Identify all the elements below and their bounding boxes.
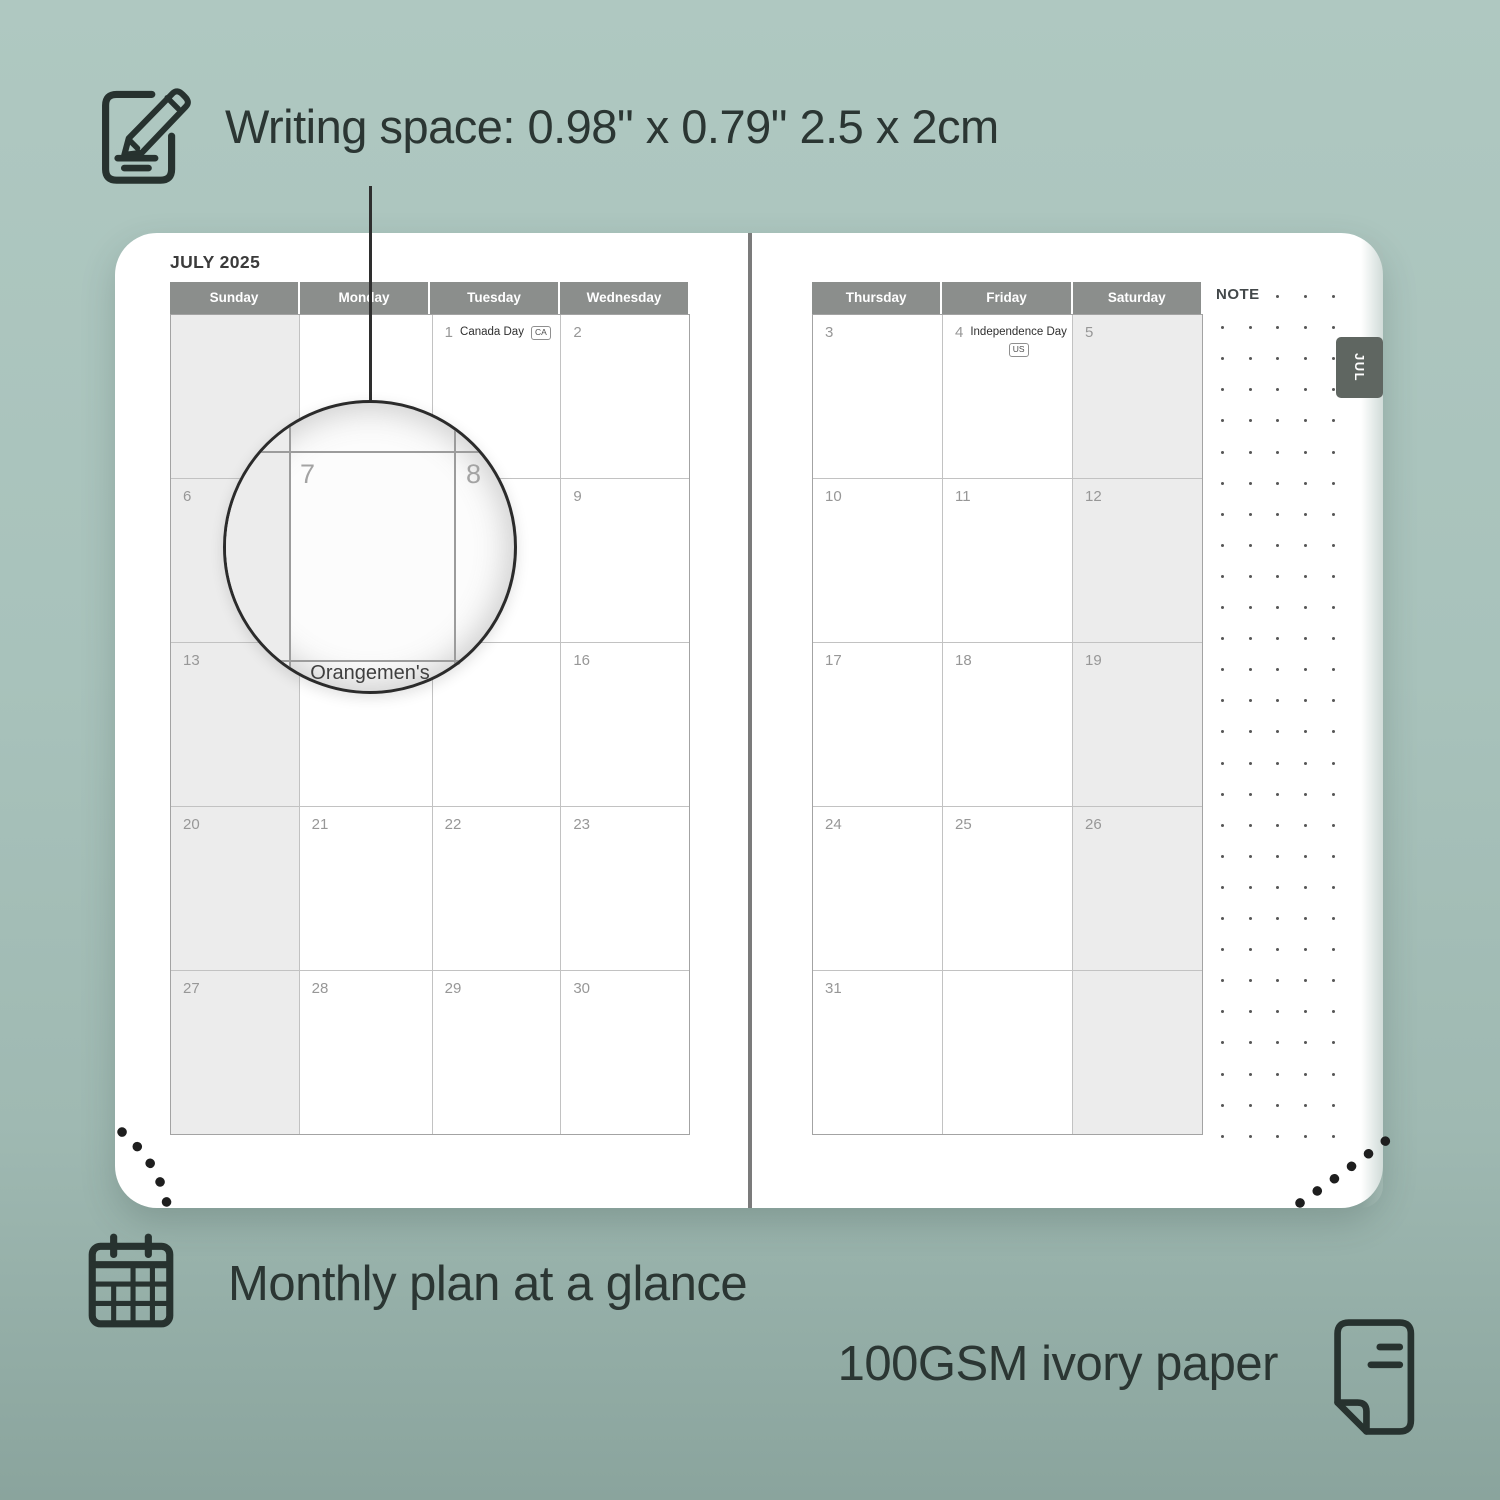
day-header-tuesday: Tuesday bbox=[430, 282, 558, 314]
note-dot bbox=[1332, 1135, 1335, 1138]
note-dot bbox=[1249, 606, 1252, 609]
planner-spine bbox=[748, 233, 752, 1208]
note-dot bbox=[1221, 886, 1224, 889]
day-number: 29 bbox=[445, 980, 462, 997]
note-dot bbox=[1304, 824, 1307, 827]
day-number: 17 bbox=[825, 652, 842, 669]
note-dot bbox=[1304, 1135, 1307, 1138]
calendar-cell-22: 22 bbox=[433, 807, 561, 970]
calendar-cell-18: 18 bbox=[943, 643, 1072, 806]
magnified-day-7: 7 bbox=[300, 459, 315, 490]
calendar-cell-19: 19 bbox=[1073, 643, 1202, 806]
day-header-wednesday: Wednesday bbox=[560, 282, 688, 314]
note-dot bbox=[1221, 482, 1224, 485]
day-number: 31 bbox=[825, 980, 842, 997]
day-number: 16 bbox=[573, 652, 590, 669]
calendar-cell-24: 24 bbox=[813, 807, 942, 970]
note-dot bbox=[1221, 917, 1224, 920]
note-dot bbox=[1249, 637, 1252, 640]
note-dot bbox=[1304, 1104, 1307, 1107]
calendar-cell-27: 27 bbox=[171, 971, 299, 1134]
note-dot bbox=[1332, 513, 1335, 516]
calendar-cell-26: 26 bbox=[1073, 807, 1202, 970]
note-dot bbox=[1304, 793, 1307, 796]
day-number: 20 bbox=[183, 816, 200, 833]
note-dot bbox=[1304, 855, 1307, 858]
calendar-cell-9: 9 bbox=[561, 479, 689, 642]
calendar-cell bbox=[943, 971, 1072, 1134]
note-dot bbox=[1249, 886, 1252, 889]
note-dot bbox=[1332, 482, 1335, 485]
day-number: 21 bbox=[312, 816, 329, 833]
magnified-holiday-text: Orangemen's bbox=[310, 662, 429, 685]
note-dot bbox=[1332, 855, 1335, 858]
note-dot bbox=[1304, 575, 1307, 578]
calendar-cell-30: 30 bbox=[561, 971, 689, 1134]
note-dot bbox=[1249, 482, 1252, 485]
day-header-friday: Friday bbox=[942, 282, 1070, 314]
note-dot bbox=[1249, 1135, 1252, 1138]
note-dot bbox=[1332, 295, 1335, 298]
magnified-gridline bbox=[454, 403, 456, 691]
note-dot bbox=[1332, 1073, 1335, 1076]
day-number: 9 bbox=[573, 488, 581, 505]
day-number: 24 bbox=[825, 816, 842, 833]
holiday-label: Canada Day bbox=[460, 326, 524, 338]
day-number: 19 bbox=[1085, 652, 1102, 669]
note-dot bbox=[1249, 357, 1252, 360]
day-number: 4 bbox=[955, 324, 963, 341]
day-header-thursday: Thursday bbox=[812, 282, 940, 314]
note-dot bbox=[1304, 1073, 1307, 1076]
note-dot bbox=[1221, 762, 1224, 765]
day-number: 22 bbox=[445, 816, 462, 833]
day-number: 23 bbox=[573, 816, 590, 833]
note-dot bbox=[1332, 326, 1335, 329]
note-dot bbox=[1249, 762, 1252, 765]
day-number: 18 bbox=[955, 652, 972, 669]
day-number: 13 bbox=[183, 652, 200, 669]
day-number: 3 bbox=[825, 324, 833, 341]
day-number: 25 bbox=[955, 816, 972, 833]
calendar-cell-3: 3 bbox=[813, 315, 942, 478]
calendar-left-header: SundayMondayTuesdayWednesday bbox=[170, 282, 688, 314]
day-number: 11 bbox=[955, 488, 971, 505]
calendar-cell-12: 12 bbox=[1073, 479, 1202, 642]
note-dot bbox=[1304, 451, 1307, 454]
note-dot bbox=[1249, 979, 1252, 982]
calendar-right-header: ThursdayFridaySaturday bbox=[812, 282, 1201, 314]
note-dot bbox=[1221, 1135, 1224, 1138]
note-dot bbox=[1332, 575, 1335, 578]
note-dot bbox=[1249, 1104, 1252, 1107]
holiday-label: Independence Day bbox=[970, 326, 1067, 338]
note-dot bbox=[1221, 575, 1224, 578]
note-dot bbox=[1221, 513, 1224, 516]
magnified-gridline bbox=[226, 451, 514, 453]
note-dot bbox=[1221, 824, 1224, 827]
calendar-right-grid: 34Independence DayUS51011121718192425263… bbox=[812, 314, 1203, 1135]
calendar-cell-20: 20 bbox=[171, 807, 299, 970]
country-badge: CA bbox=[531, 326, 551, 340]
note-dot bbox=[1249, 855, 1252, 858]
note-dot bbox=[1332, 793, 1335, 796]
note-dot bbox=[1249, 451, 1252, 454]
note-dot bbox=[1332, 668, 1335, 671]
month-title: JULY 2025 bbox=[170, 252, 260, 273]
note-dot bbox=[1332, 451, 1335, 454]
day-number: 5 bbox=[1085, 324, 1093, 341]
note-dot bbox=[1249, 513, 1252, 516]
note-dot bbox=[1332, 606, 1335, 609]
paper-annotation: 100GSM ivory paper bbox=[578, 1336, 1278, 1392]
magnified-weekend-shade bbox=[226, 403, 289, 691]
note-dot bbox=[1221, 606, 1224, 609]
note-dot bbox=[1332, 979, 1335, 982]
calendar-cell-11: 11 bbox=[943, 479, 1072, 642]
note-dot bbox=[1304, 513, 1307, 516]
note-dot bbox=[1332, 544, 1335, 547]
note-dot bbox=[1249, 326, 1252, 329]
calendar-cell-28: 28 bbox=[300, 971, 432, 1134]
calendar-cell-23: 23 bbox=[561, 807, 689, 970]
day-number: 1 bbox=[445, 324, 453, 341]
note-dot bbox=[1304, 482, 1307, 485]
note-dot bbox=[1332, 917, 1335, 920]
note-dot bbox=[1249, 1073, 1252, 1076]
note-dot bbox=[1221, 793, 1224, 796]
calendar-cell-5: 5 bbox=[1073, 315, 1202, 478]
calendar-cell bbox=[1073, 971, 1202, 1134]
day-number: 26 bbox=[1085, 816, 1102, 833]
day-number: 6 bbox=[183, 488, 191, 505]
note-dot bbox=[1304, 886, 1307, 889]
day-number: 2 bbox=[573, 324, 581, 341]
day-number: 12 bbox=[1085, 488, 1102, 505]
magnifier-circle: 7 8 Orangemen's bbox=[223, 400, 517, 694]
day-number: 10 bbox=[825, 488, 842, 505]
day-number: 27 bbox=[183, 980, 200, 997]
note-dot bbox=[1249, 917, 1252, 920]
calendar-cell-21: 21 bbox=[300, 807, 432, 970]
note-dot bbox=[1332, 1104, 1335, 1107]
day-number: 30 bbox=[573, 980, 590, 997]
magnified-day-8: 8 bbox=[466, 459, 481, 490]
calendar-cell-31: 31 bbox=[813, 971, 942, 1134]
country-badge: US bbox=[1009, 343, 1029, 357]
product-image: { "annotations": { "writing_space": "Wri… bbox=[0, 0, 1500, 1500]
paper-icon bbox=[1322, 1314, 1422, 1440]
note-dot bbox=[1332, 886, 1335, 889]
note-dot bbox=[1249, 824, 1252, 827]
calendar-cell-29: 29 bbox=[433, 971, 561, 1134]
day-header-monday: Monday bbox=[300, 282, 428, 314]
note-dot bbox=[1332, 762, 1335, 765]
magnified-gridline bbox=[289, 403, 291, 691]
note-dot bbox=[1249, 793, 1252, 796]
month-tab-jul: JUL bbox=[1336, 337, 1383, 398]
note-dot bbox=[1332, 824, 1335, 827]
note-dot bbox=[1249, 575, 1252, 578]
note-dot bbox=[1221, 451, 1224, 454]
day-header-saturday: Saturday bbox=[1073, 282, 1201, 314]
monthly-plan-annotation: Monthly plan at a glance bbox=[228, 1256, 747, 1312]
calendar-cell-25: 25 bbox=[943, 807, 1072, 970]
note-dot bbox=[1249, 668, 1252, 671]
note-dot bbox=[1332, 357, 1335, 360]
note-dot bbox=[1221, 1073, 1224, 1076]
note-dot bbox=[1221, 1104, 1224, 1107]
day-number: 28 bbox=[312, 980, 329, 997]
note-dot bbox=[1332, 637, 1335, 640]
note-dot bbox=[1249, 948, 1252, 951]
calendar-cell-10: 10 bbox=[813, 479, 942, 642]
calendar-cell-17: 17 bbox=[813, 643, 942, 806]
day-header-sunday: Sunday bbox=[170, 282, 298, 314]
note-dot bbox=[1221, 544, 1224, 547]
note-dot bbox=[1221, 855, 1224, 858]
month-tab-label: JUL bbox=[1352, 353, 1367, 382]
note-label: NOTE bbox=[1216, 286, 1260, 303]
note-dot bbox=[1249, 544, 1252, 547]
calendar-cell-4: 4Independence DayUS bbox=[943, 315, 1072, 478]
calendar-cell-16: 16 bbox=[561, 643, 689, 806]
calendar-icon bbox=[80, 1230, 182, 1332]
note-dot bbox=[1304, 544, 1307, 547]
callout-pointer-line bbox=[369, 186, 372, 404]
note-dot bbox=[1304, 762, 1307, 765]
calendar-cell-2: 2 bbox=[561, 315, 689, 478]
note-dot bbox=[1332, 948, 1335, 951]
